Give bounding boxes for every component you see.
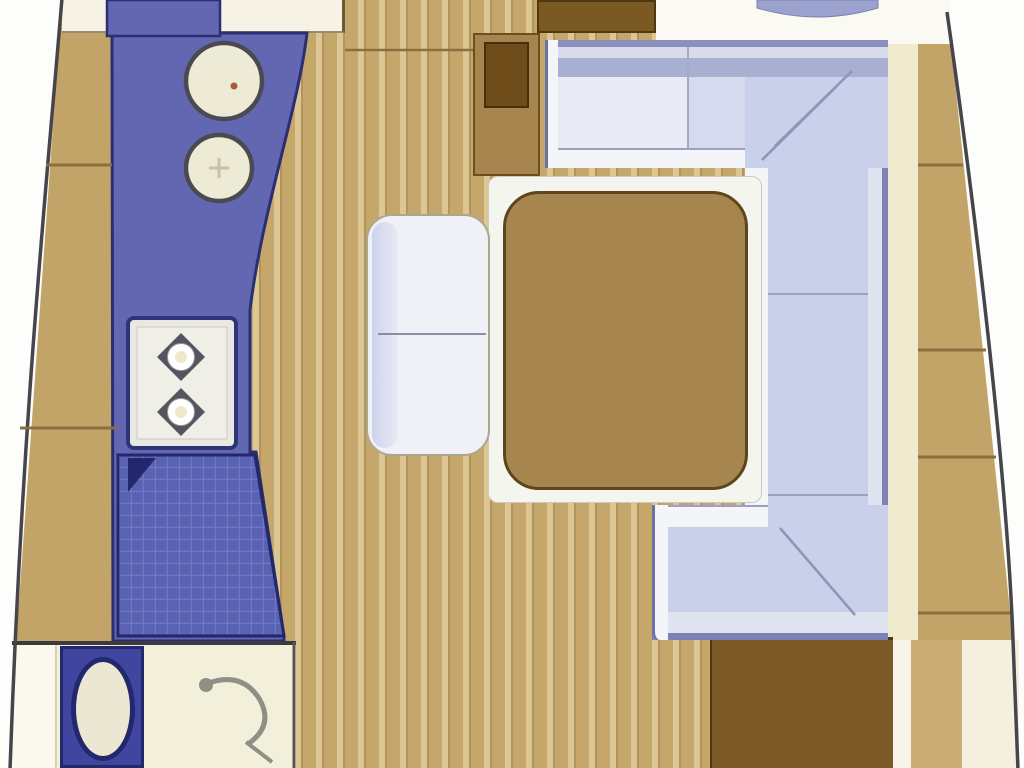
toilet-platform xyxy=(60,646,144,768)
settee-outer-band xyxy=(652,612,888,633)
burner-center xyxy=(175,351,187,363)
aft-deck-white-strip xyxy=(893,640,911,768)
forward-locker xyxy=(537,0,656,33)
mast-post xyxy=(484,42,529,108)
aft-deck-cream xyxy=(962,640,1019,768)
settee-forward-arm xyxy=(545,40,888,168)
drainboard-corner xyxy=(128,458,156,492)
stove-top xyxy=(137,327,227,439)
burner-ring xyxy=(168,399,195,426)
forward-white-strip xyxy=(656,0,950,44)
sink-cross-icon xyxy=(209,158,229,178)
head-shelf xyxy=(12,645,57,768)
stove-burner-icon xyxy=(157,388,205,436)
settee-trim xyxy=(652,505,768,527)
settee-trim xyxy=(545,150,745,168)
starboard-side-deck xyxy=(900,0,1024,640)
aft-locker xyxy=(710,637,893,768)
settee-backrest-band xyxy=(545,58,888,77)
settee-edge xyxy=(652,633,888,640)
sink-drain-icon xyxy=(231,83,238,90)
toilet-icon xyxy=(71,657,135,761)
settee-cushion-seam xyxy=(687,47,689,148)
settee-edge xyxy=(545,40,888,47)
stove-burner-icon xyxy=(157,333,205,381)
stove xyxy=(128,318,236,448)
bench-cushion-seam xyxy=(378,333,486,335)
port-side-deck xyxy=(0,0,120,643)
aft-deck-tan xyxy=(911,640,962,768)
bench-seat xyxy=(366,214,490,456)
settee-cushion-seam xyxy=(768,293,868,295)
burner-ring xyxy=(168,344,195,371)
settee-arm-end xyxy=(545,40,558,168)
settee-arm-end xyxy=(652,505,668,640)
starboard-deck-cream-strip xyxy=(888,14,918,640)
settee-cushion-seam xyxy=(768,494,868,496)
dinette-table xyxy=(503,191,748,490)
forward-bulkhead-strip xyxy=(62,0,345,33)
settee-aft-arm xyxy=(652,505,888,640)
burner-center xyxy=(175,406,187,418)
settee-outer-band xyxy=(545,47,888,58)
floor-plan xyxy=(0,0,1024,768)
